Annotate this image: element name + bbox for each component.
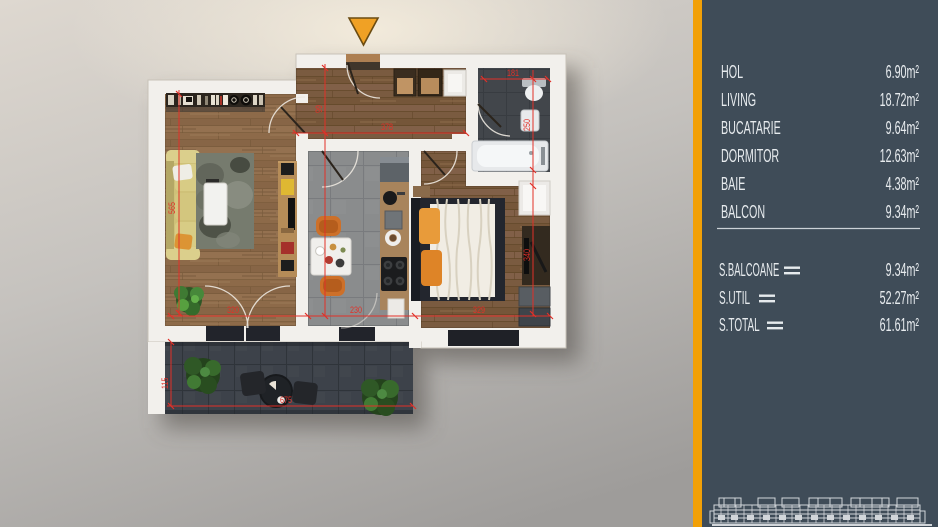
svg-text:BALCON: BALCON <box>721 202 765 223</box>
svg-text:320: 320 <box>227 305 239 315</box>
svg-text:378: 378 <box>381 122 393 132</box>
svg-text:S.TOTAL: S.TOTAL <box>719 316 760 336</box>
svg-text:6.90m²: 6.90m² <box>886 62 919 83</box>
svg-text:115: 115 <box>160 377 170 389</box>
svg-text:4.38m²: 4.38m² <box>886 174 919 195</box>
svg-text:12.63m²: 12.63m² <box>880 146 919 167</box>
svg-text:9.34m²: 9.34m² <box>886 202 919 223</box>
svg-text:52.27m²: 52.27m² <box>880 288 919 309</box>
svg-text:BUCATARIE: BUCATARIE <box>721 118 781 139</box>
svg-text:18.72m²: 18.72m² <box>880 90 919 111</box>
svg-text:99: 99 <box>314 105 324 113</box>
svg-text:9.34m²: 9.34m² <box>886 260 919 281</box>
svg-text:329: 329 <box>473 305 485 315</box>
svg-text:181: 181 <box>507 68 519 78</box>
svg-text:340: 340 <box>522 249 532 261</box>
svg-text:250: 250 <box>522 119 532 131</box>
svg-text:S.UTIL: S.UTIL <box>719 289 750 309</box>
svg-text:61.61m²: 61.61m² <box>880 315 919 336</box>
svg-text:675: 675 <box>280 395 292 405</box>
svg-text:565: 565 <box>167 202 177 214</box>
svg-text:230: 230 <box>350 305 362 315</box>
svg-text:DORMITOR: DORMITOR <box>721 146 779 167</box>
svg-text:9.64m²: 9.64m² <box>886 118 919 139</box>
svg-text:S.BALCOANE: S.BALCOANE <box>719 261 779 281</box>
svg-text:BAIE: BAIE <box>721 174 745 195</box>
svg-text:LIVING: LIVING <box>721 90 756 111</box>
svg-text:HOL: HOL <box>721 62 743 83</box>
